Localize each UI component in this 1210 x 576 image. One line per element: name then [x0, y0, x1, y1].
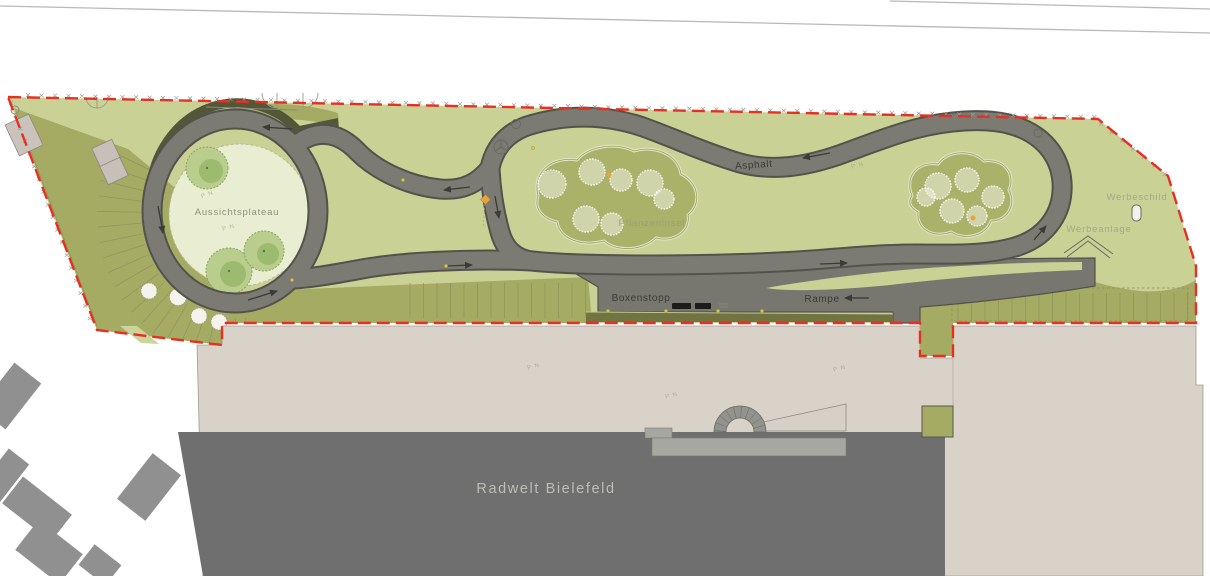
bench	[672, 303, 691, 309]
buildings	[178, 326, 1203, 576]
tree	[186, 147, 228, 189]
label-werbeanlage: Werbeanlage	[1066, 224, 1131, 235]
label-werbeschild: Werbeschild	[1107, 192, 1168, 203]
notch-green-patch	[920, 326, 953, 356]
bench	[695, 303, 711, 309]
label-aussichtsplateau: Aussichtsplateau	[195, 207, 280, 218]
tree	[244, 231, 284, 271]
entrance-landing	[652, 438, 846, 456]
label-pflanzeninsel: Pflanzeninsel	[619, 218, 686, 229]
site-plan-drawing: Aussichtsplateau Pflanzeninsel Asphalt B…	[0, 0, 1210, 576]
green-square-patch	[922, 406, 953, 437]
site-plan-canvas: Aussichtsplateau Pflanzeninsel Asphalt B…	[0, 0, 1210, 576]
label-boxenstopp: Boxenstopp	[612, 293, 671, 304]
orange-marker	[971, 216, 976, 221]
label-rampe: Rampe	[804, 294, 839, 305]
label-building-name: Radwelt Bielefeld	[476, 481, 615, 497]
orange-marker	[607, 173, 612, 178]
landing-step	[645, 428, 672, 438]
werbeschild-sign-icon	[1132, 205, 1141, 221]
